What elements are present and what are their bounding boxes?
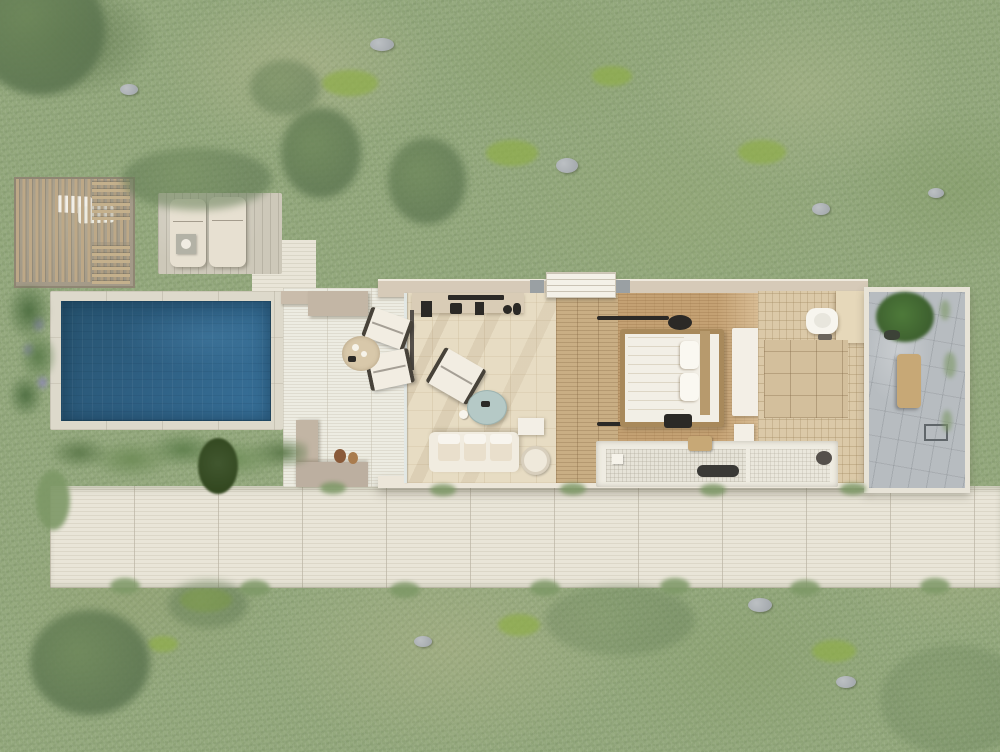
side-console <box>518 418 544 435</box>
grass-tuft <box>840 483 866 495</box>
bush-row <box>122 148 272 210</box>
poolside-vegetation <box>48 424 308 488</box>
duvet <box>628 336 684 410</box>
table-decor <box>481 401 490 407</box>
bowl <box>503 305 512 314</box>
teapot <box>348 356 356 362</box>
deck-tray <box>181 239 191 249</box>
sofa-pillow <box>464 434 486 444</box>
vase <box>513 303 521 315</box>
rock <box>120 84 138 95</box>
coffee-machine <box>450 303 462 314</box>
appliance <box>421 301 432 317</box>
grass-tuft <box>700 484 726 496</box>
moss-patch <box>486 140 538 166</box>
cup <box>459 410 468 419</box>
bath-stool <box>688 436 712 451</box>
tree-canopy <box>388 138 466 224</box>
pouf <box>668 315 692 330</box>
spiky-plant <box>198 438 238 494</box>
closet-shelving <box>764 340 848 418</box>
bush <box>168 580 248 628</box>
entrance-steps <box>546 272 616 298</box>
cup <box>352 344 359 351</box>
rock <box>928 188 944 198</box>
lavender-shrubs <box>4 285 66 415</box>
grass-tuft <box>942 410 952 432</box>
dense-grass-patch <box>545 585 695 655</box>
clay-pot <box>334 449 346 463</box>
grass-tuft <box>790 580 820 596</box>
grass-edge <box>36 470 70 530</box>
pillow <box>680 373 699 401</box>
rock <box>748 598 772 612</box>
entrance-mat <box>530 280 544 293</box>
sofa-pillow <box>490 434 512 444</box>
planter-pot <box>884 330 900 340</box>
courtyard-bench <box>897 354 921 408</box>
rock <box>836 676 856 688</box>
grass-tuft <box>430 484 456 496</box>
toilet-seat <box>814 313 831 328</box>
clay-pot <box>348 452 358 464</box>
grass-tuft <box>240 580 270 596</box>
grass-tuft <box>660 578 690 594</box>
wardrobe-panel <box>732 328 760 416</box>
grass-tuft <box>320 482 346 494</box>
grass-tuft <box>920 578 950 594</box>
grass-tuft <box>390 582 420 598</box>
rock <box>556 158 578 173</box>
soap-dish <box>612 454 623 464</box>
bed-headboard <box>700 331 710 415</box>
stone-walkway <box>50 486 1000 588</box>
foot-bench <box>664 414 692 428</box>
grass-tuft <box>944 352 956 378</box>
moss-patch <box>148 636 178 652</box>
moss-patch <box>322 70 378 96</box>
coffee-table <box>467 390 507 425</box>
terrace-wall-slab <box>308 291 368 316</box>
entrance-mat <box>616 280 630 293</box>
kitchenette-shelf <box>448 295 504 300</box>
basket <box>521 446 550 475</box>
tree-canopy <box>30 610 150 715</box>
moss-patch <box>498 614 540 636</box>
cup <box>361 351 367 357</box>
moss-patch <box>738 140 786 164</box>
pergola-cross-slats <box>92 242 130 284</box>
grass-tuft <box>110 578 140 594</box>
rock <box>414 636 432 647</box>
grass-tuft <box>530 580 560 596</box>
rock <box>370 38 394 51</box>
tree-canopy <box>281 108 361 198</box>
light-track <box>597 316 669 320</box>
moss-patch <box>812 640 856 662</box>
moss-patch <box>592 66 632 86</box>
grass-tuft <box>940 300 950 320</box>
bush <box>250 60 320 115</box>
grass-tuft <box>560 483 586 495</box>
bath-tray <box>697 465 739 477</box>
aerial-villa-render <box>0 0 1000 752</box>
appliance <box>475 302 484 315</box>
pillow <box>680 341 699 369</box>
rock <box>812 203 830 215</box>
vessel-sink <box>816 451 832 465</box>
pool-water <box>61 301 271 421</box>
sofa-pillow <box>438 434 460 444</box>
storage-box <box>734 424 754 442</box>
